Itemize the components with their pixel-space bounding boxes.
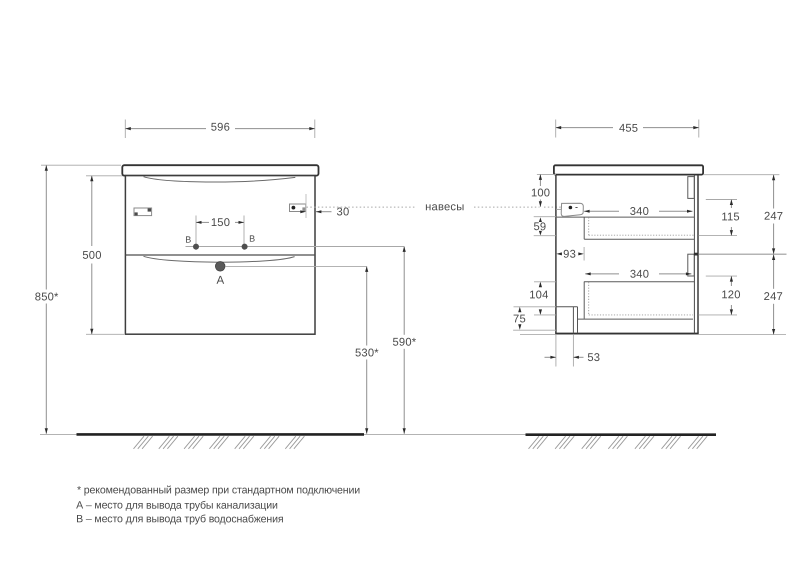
svg-text:навесы: навесы <box>425 201 464 213</box>
svg-text:150: 150 <box>211 217 230 229</box>
svg-text:100: 100 <box>531 187 550 199</box>
svg-text:75: 75 <box>513 313 526 325</box>
svg-text:В: В <box>185 235 191 245</box>
svg-text:В – место для вывода труб водо: В – место для вывода труб водоснабжения <box>76 513 283 525</box>
svg-text:500: 500 <box>82 250 101 262</box>
svg-text:247: 247 <box>764 211 783 223</box>
svg-text:596: 596 <box>211 122 230 134</box>
svg-text:120: 120 <box>721 289 740 301</box>
svg-text:30: 30 <box>337 206 350 218</box>
svg-text:А: А <box>217 275 225 287</box>
svg-text:115: 115 <box>721 211 739 223</box>
svg-text:104: 104 <box>529 289 548 301</box>
svg-text:А – место для вывода трубы кан: А – место для вывода трубы канализации <box>76 500 278 512</box>
svg-text:247: 247 <box>764 291 783 303</box>
svg-text:850*: 850* <box>35 291 59 303</box>
svg-text:53: 53 <box>587 352 600 364</box>
svg-text:455: 455 <box>619 123 638 135</box>
svg-text:590*: 590* <box>392 337 416 349</box>
svg-text:340: 340 <box>630 206 649 218</box>
svg-text:93: 93 <box>563 249 576 261</box>
svg-text:530*: 530* <box>355 347 379 359</box>
svg-text:340: 340 <box>630 269 649 281</box>
svg-text:* рекомендованный размер при с: * рекомендованный размер при стандартном… <box>77 484 360 496</box>
svg-text:59: 59 <box>533 221 546 233</box>
svg-text:В: В <box>249 234 255 244</box>
